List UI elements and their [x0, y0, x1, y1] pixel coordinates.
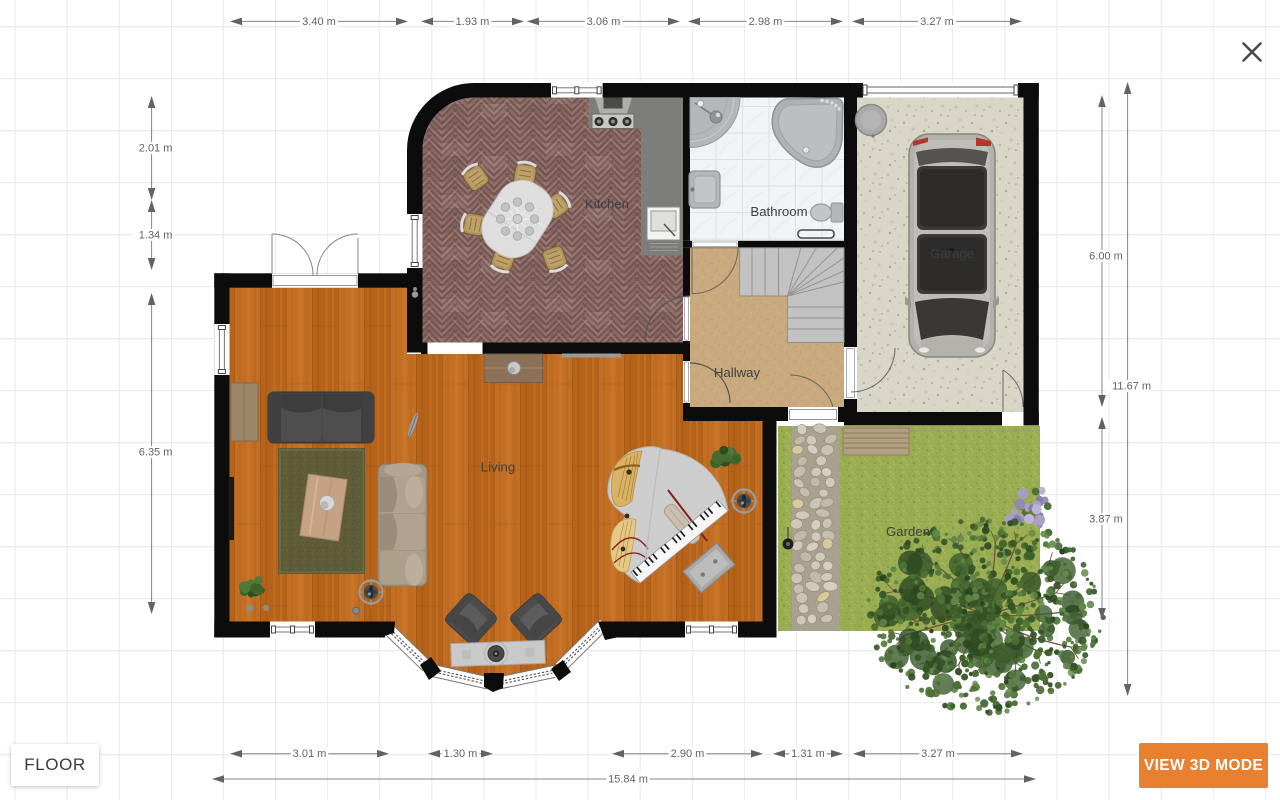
svg-text:3.87 m: 3.87 m — [1089, 514, 1123, 526]
svg-text:2.01 m: 2.01 m — [139, 143, 173, 155]
svg-text:1.34 m: 1.34 m — [139, 230, 173, 242]
svg-text:Hallway: Hallway — [714, 365, 761, 380]
svg-text:11.67 m: 11.67 m — [1112, 381, 1151, 393]
svg-text:2.98 m: 2.98 m — [749, 16, 783, 28]
svg-text:1.93 m: 1.93 m — [456, 16, 490, 28]
svg-text:3.27 m: 3.27 m — [920, 16, 954, 28]
svg-text:3.01 m: 3.01 m — [293, 748, 327, 760]
svg-text:Living: Living — [481, 460, 515, 475]
svg-text:Kitchen: Kitchen — [585, 197, 629, 212]
svg-text:1.31 m: 1.31 m — [791, 748, 825, 760]
svg-text:3.27 m: 3.27 m — [921, 748, 955, 760]
svg-text:6.00 m: 6.00 m — [1089, 251, 1123, 263]
svg-text:1.30 m: 1.30 m — [444, 748, 478, 760]
svg-text:Garage: Garage — [930, 246, 974, 261]
svg-text:Garden: Garden — [886, 524, 930, 539]
svg-text:3.06 m: 3.06 m — [587, 16, 621, 28]
svg-text:6.35 m: 6.35 m — [139, 447, 173, 459]
svg-text:3.40 m: 3.40 m — [302, 16, 336, 28]
svg-text:2.90 m: 2.90 m — [671, 748, 705, 760]
svg-text:Bathroom: Bathroom — [750, 204, 807, 219]
svg-text:15.84 m: 15.84 m — [608, 774, 648, 786]
